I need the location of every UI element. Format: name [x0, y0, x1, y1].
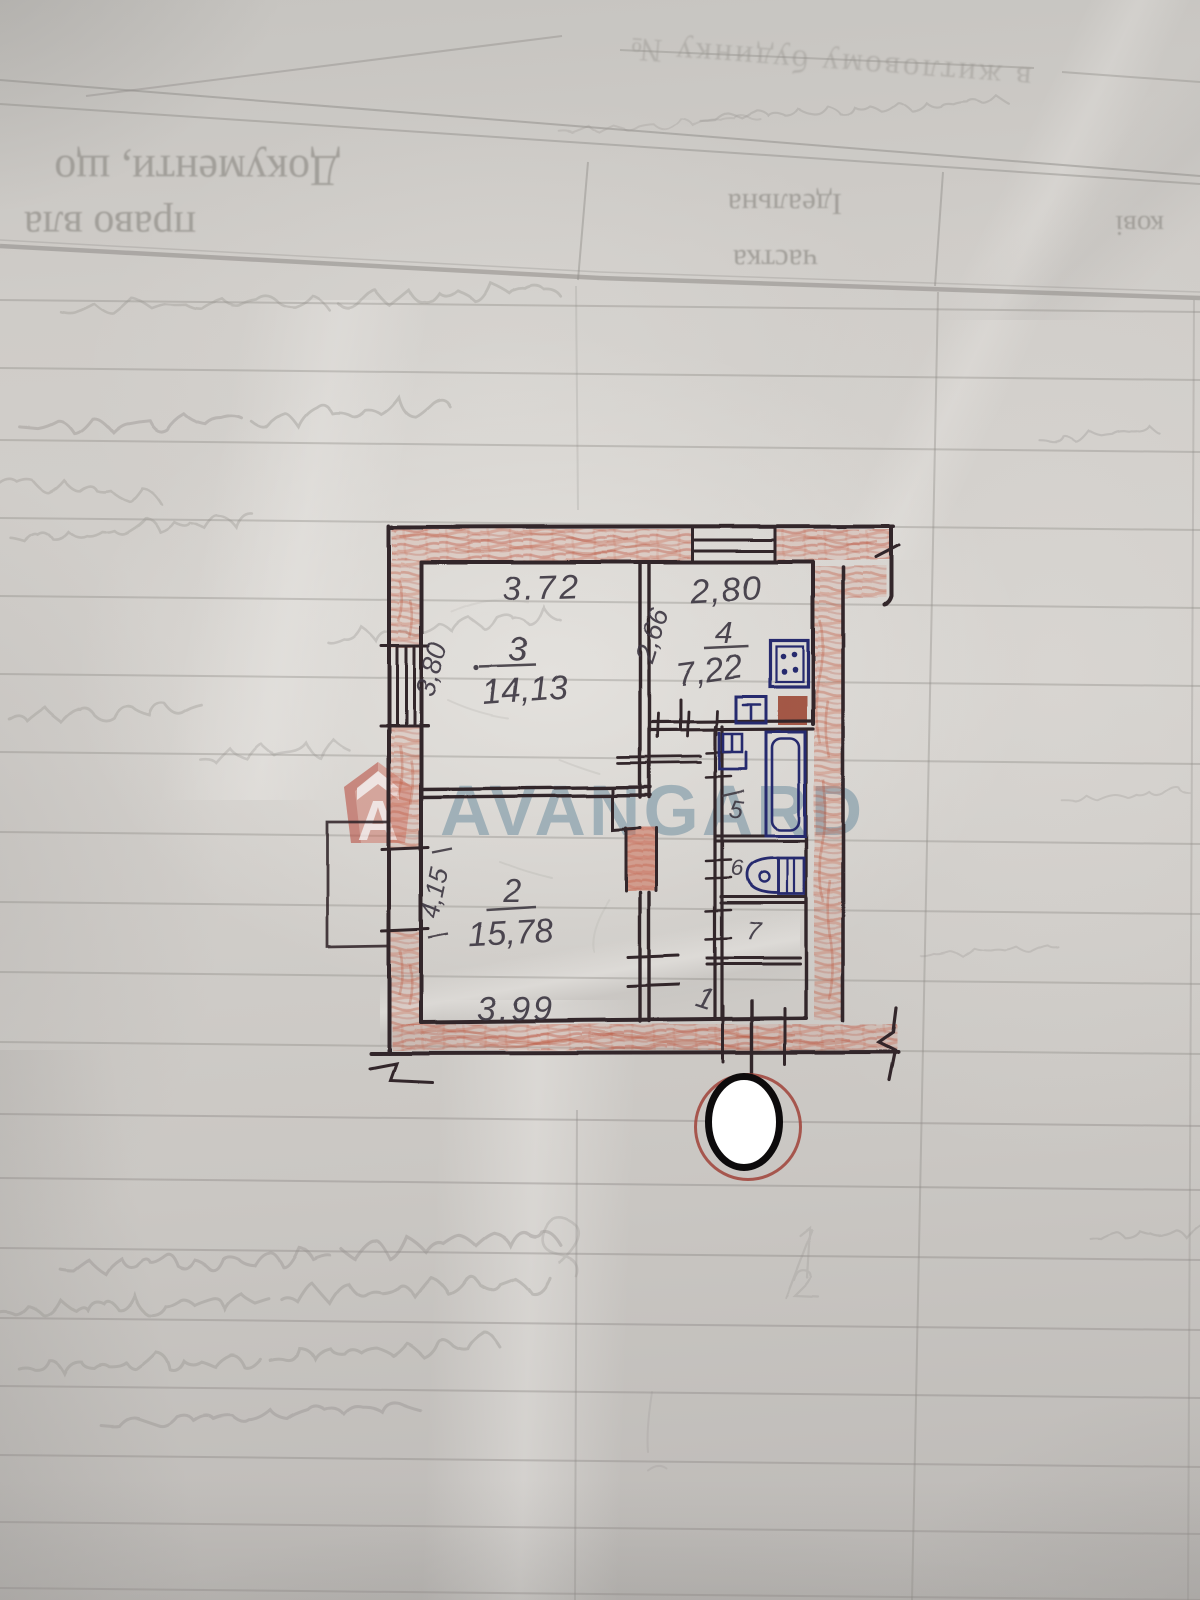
- svg-text:7,22: 7,22: [674, 648, 745, 695]
- svg-text:2,66: 2,66: [628, 604, 675, 667]
- svg-text:14,13: 14,13: [481, 668, 569, 712]
- svg-text:4: 4: [715, 615, 732, 650]
- svg-text:3: 3: [509, 631, 528, 669]
- svg-text:кові: кові: [1115, 209, 1164, 241]
- svg-text:3.72: 3.72: [502, 568, 581, 609]
- svg-text:Документи, що: Документи, що: [54, 146, 340, 195]
- svg-text:в житловому будинку №: в житловому будинку №: [626, 30, 1032, 96]
- svg-text:6: 6: [731, 855, 744, 881]
- svg-text:частка: частка: [733, 243, 818, 278]
- svg-text:2: 2: [502, 872, 521, 909]
- svg-text:7: 7: [744, 915, 763, 947]
- svg-text:2,80: 2,80: [688, 569, 763, 611]
- svg-text:Ідеальна: Ідеальна: [728, 187, 842, 222]
- svg-text:3.99: 3.99: [477, 990, 555, 1028]
- svg-text:право вла: право вла: [24, 202, 196, 248]
- svg-text:15,78: 15,78: [467, 912, 554, 954]
